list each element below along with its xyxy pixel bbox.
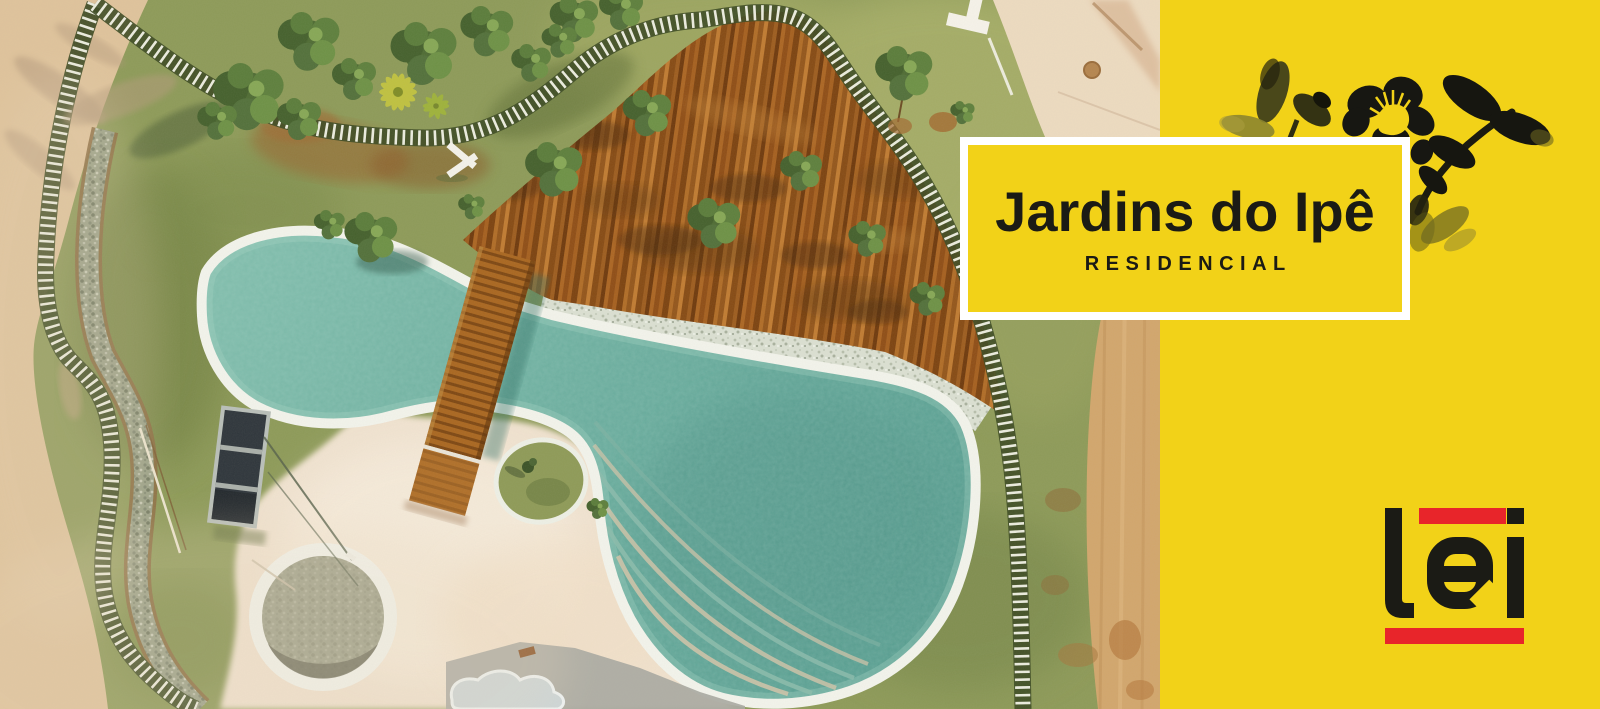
- left-leaf-branch: [1218, 56, 1337, 143]
- brand-panel: [1160, 0, 1600, 709]
- photo-grain: [0, 0, 1160, 709]
- project-subtitle: RESIDENCIAL: [1078, 254, 1292, 274]
- logo-bottom-red-bar: [1385, 628, 1524, 644]
- logo-letter-e: [1433, 546, 1501, 611]
- project-name-badge: Jardins do Ipê RESIDENCIAL: [960, 137, 1410, 320]
- project-title: Jardins do Ipê: [995, 184, 1375, 240]
- logo-top-red-bar: [1419, 508, 1506, 524]
- logo-letter-l: [1385, 508, 1414, 618]
- lei-logo: [1383, 506, 1526, 646]
- logo-letter-i: [1507, 508, 1524, 618]
- aerial-photo: [0, 0, 1160, 709]
